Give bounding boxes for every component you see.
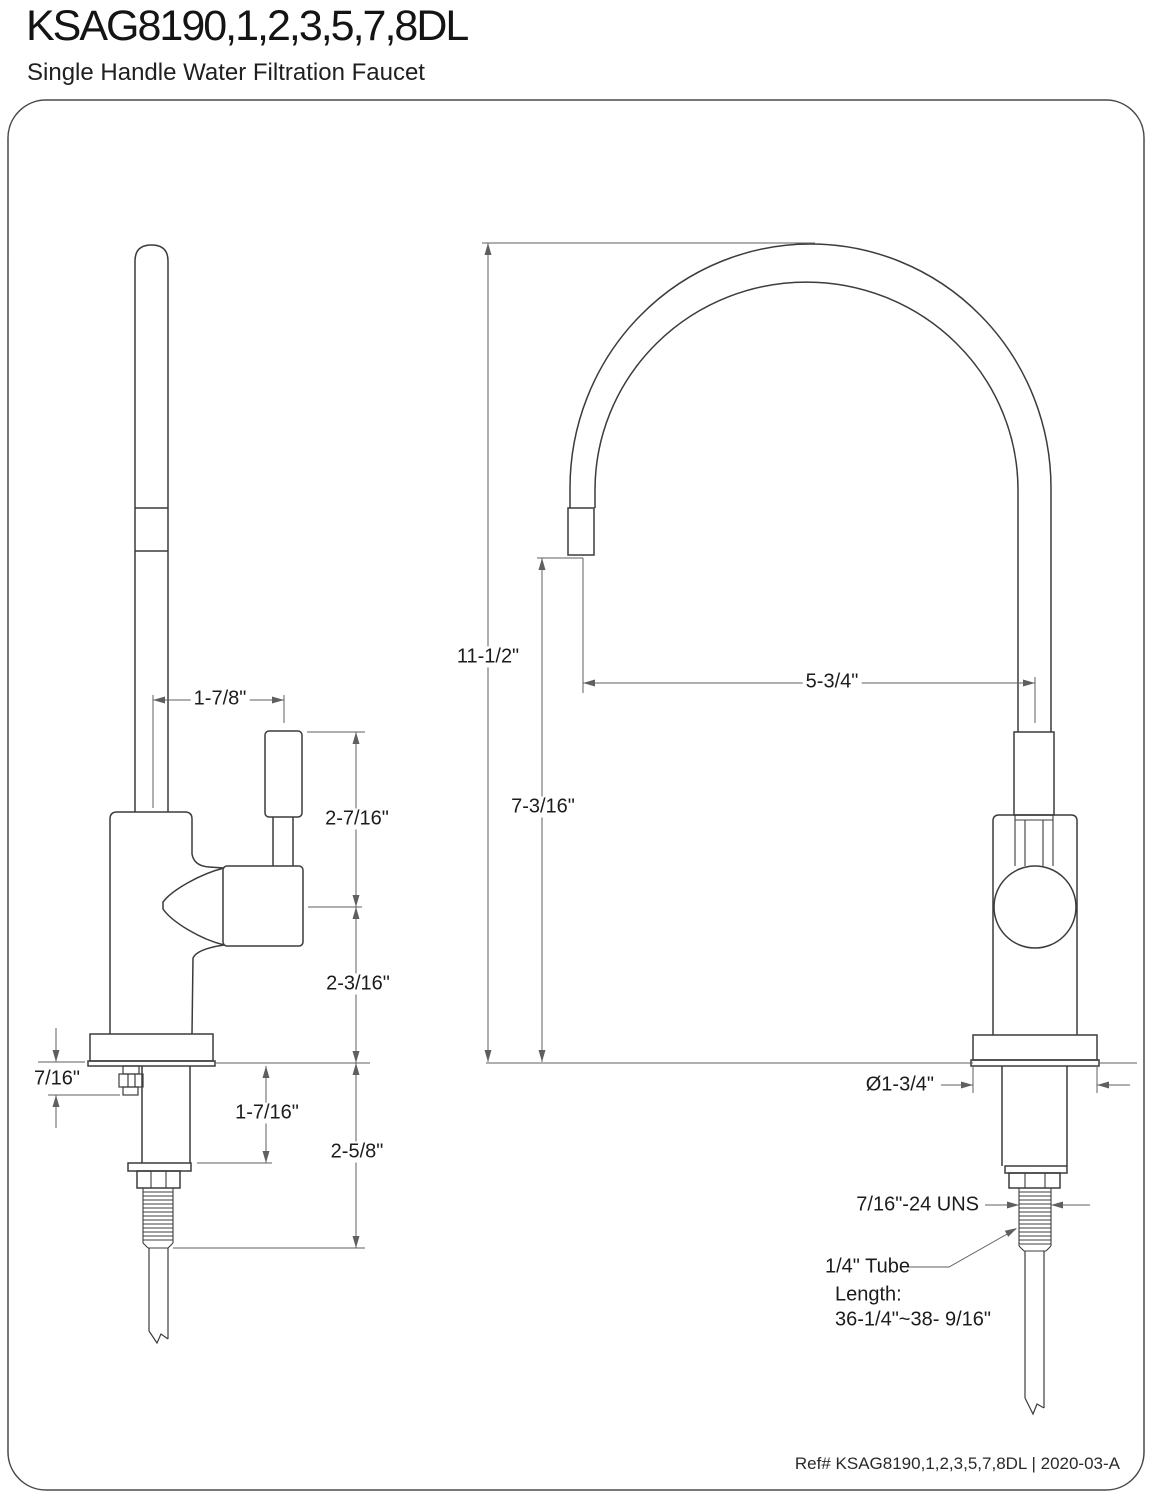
side-washer <box>128 1163 191 1171</box>
technical-drawing <box>0 0 1150 1500</box>
front-collar <box>1014 732 1054 815</box>
side-handle-hub <box>223 866 303 946</box>
side-threads <box>143 1188 173 1248</box>
dim-spout-to-handle: 1-7/8" <box>191 689 250 710</box>
side-view <box>88 245 303 1343</box>
dim-deck-to-washer: 1-7/16" <box>232 1103 302 1124</box>
front-view <box>568 244 1099 1414</box>
dimension-arrowheads <box>53 243 1110 1248</box>
dim-deck-to-outlet: 7-3/16" <box>508 797 578 818</box>
dim-flange-depth: 7/16" <box>31 1069 83 1090</box>
dim-pivot-to-deck: 2-3/16" <box>323 974 393 995</box>
tube-note-line3: 36-1/4"~38- 9/16" <box>832 1310 994 1331</box>
front-handle-pivot <box>994 866 1076 948</box>
side-supply-tube <box>149 1248 168 1343</box>
front-gooseneck-inner <box>595 282 1018 732</box>
front-supply-tube <box>1025 1251 1044 1414</box>
dim-thread-spec: 7/16"-24 UNS <box>853 1195 982 1216</box>
dim-deck-to-thread: 2-5/8" <box>328 1142 387 1163</box>
side-flange <box>90 1034 213 1061</box>
side-undermount-fitting <box>119 1066 143 1095</box>
front-gooseneck-outer <box>570 244 1051 732</box>
side-spout-joint-lines <box>135 508 168 551</box>
side-hex-nut <box>137 1171 180 1188</box>
side-body <box>110 812 224 1034</box>
dim-spout-reach: 5-3/4" <box>803 672 862 693</box>
front-threads <box>1019 1188 1051 1251</box>
front-spout-outlet <box>568 508 594 555</box>
side-shank <box>142 1066 190 1163</box>
dim-base-diameter: Ø1-3/4" <box>863 1075 937 1096</box>
spec-sheet: KSAG8190,1,2,3,5,7,8DL Single Handle Wat… <box>0 0 1150 1500</box>
side-spout-tube <box>135 245 168 812</box>
front-flange-lip <box>971 1060 1099 1066</box>
tube-note-line1: 1/4" Tube <box>822 1257 913 1278</box>
side-handle-grip <box>265 731 302 817</box>
front-washer <box>1005 1166 1067 1173</box>
front-shank <box>1002 1066 1067 1166</box>
front-body-inner-lines <box>1015 815 1053 866</box>
front-hex-nut <box>1009 1173 1060 1188</box>
front-flange <box>973 1035 1097 1060</box>
footer-reference: Ref# KSAG8190,1,2,3,5,7,8DL | 2020-03-A <box>795 1454 1120 1474</box>
tube-note-line2: Length: <box>832 1285 905 1306</box>
dim-overall-height: 11-1/2" <box>454 647 522 668</box>
front-body <box>993 815 1077 1035</box>
dim-handle-to-pivot: 2-7/16" <box>322 809 392 830</box>
side-flange-lip <box>88 1061 215 1066</box>
side-handle-stem <box>273 817 293 866</box>
